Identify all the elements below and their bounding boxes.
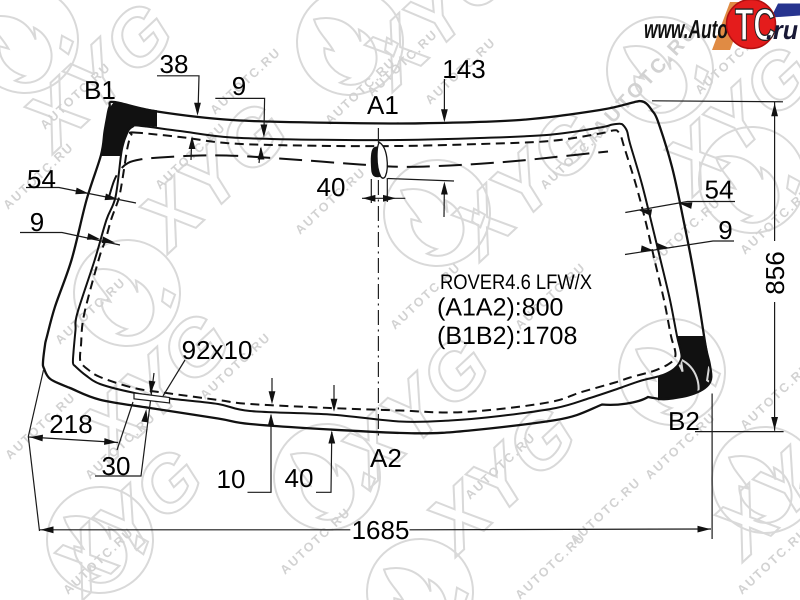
- svg-text:ROVER4.6 LFW/X: ROVER4.6 LFW/X: [440, 271, 592, 294]
- svg-text:9: 9: [232, 71, 246, 101]
- svg-text:(B1B2):1708: (B1B2):1708: [437, 322, 577, 350]
- svg-text:40: 40: [317, 172, 346, 202]
- svg-text:143: 143: [442, 54, 485, 84]
- svg-text:92x10: 92x10: [182, 335, 253, 365]
- svg-text:30: 30: [102, 451, 131, 481]
- svg-text:54: 54: [705, 175, 734, 205]
- svg-text:1685: 1685: [352, 515, 410, 545]
- svg-text:(A1A2):800: (A1A2):800: [437, 294, 563, 322]
- svg-text:B1: B1: [84, 75, 116, 105]
- svg-text:9: 9: [30, 207, 44, 237]
- svg-text:9: 9: [718, 215, 732, 245]
- svg-text:856: 856: [760, 251, 790, 294]
- svg-text:40: 40: [285, 463, 314, 493]
- svg-text:10: 10: [217, 464, 246, 494]
- svg-text:www.Auto: www.Auto: [644, 14, 728, 44]
- svg-text:54: 54: [27, 164, 56, 194]
- svg-text:38: 38: [160, 49, 189, 79]
- svg-text:A1: A1: [367, 90, 399, 120]
- svg-text:A2: A2: [370, 443, 402, 473]
- svg-text:218: 218: [49, 409, 92, 439]
- svg-text:B2: B2: [668, 406, 700, 436]
- svg-text:.ru: .ru: [766, 15, 798, 45]
